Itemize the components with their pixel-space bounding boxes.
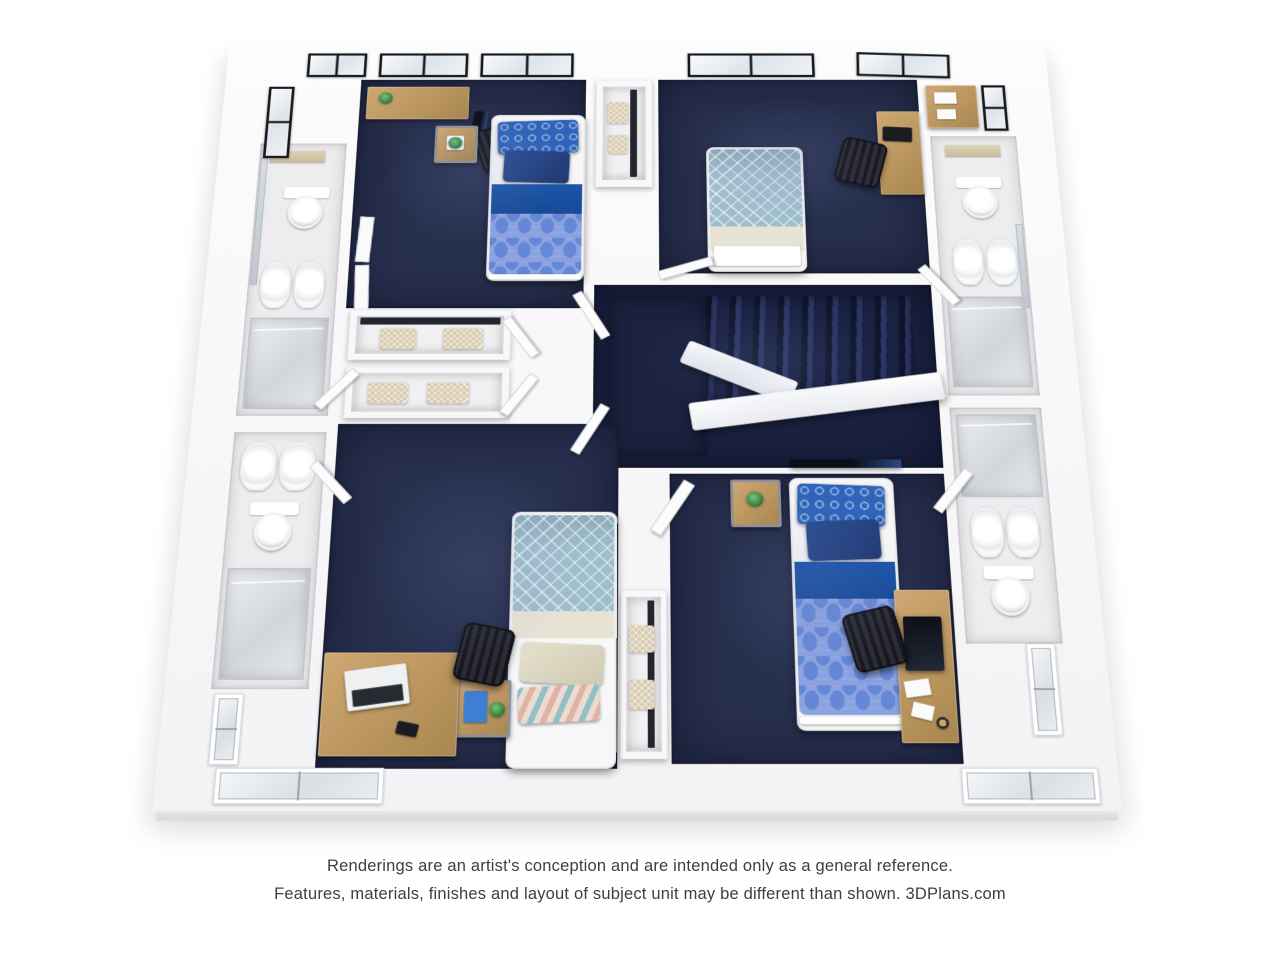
bed-cream-band xyxy=(512,611,614,638)
bed-footboard xyxy=(488,274,581,279)
shower xyxy=(955,414,1043,497)
toilet xyxy=(954,177,1007,223)
floor-plan-rendering-page: Renderings are an artist's conception an… xyxy=(0,0,1280,960)
storage-basket xyxy=(427,383,470,404)
window xyxy=(307,53,368,77)
storage-basket xyxy=(443,328,483,349)
storage-basket xyxy=(379,328,416,349)
storage-basket xyxy=(367,383,408,404)
navy-pillow xyxy=(503,150,571,184)
bedroom-bottom-right xyxy=(670,474,964,764)
toilet-bowl xyxy=(990,577,1031,616)
nightstand xyxy=(730,480,782,528)
desk xyxy=(318,653,460,757)
mug xyxy=(936,717,950,729)
shower xyxy=(218,568,312,680)
closet-rail xyxy=(630,90,637,177)
closet-top-center xyxy=(595,80,652,187)
toilet-bowl xyxy=(961,186,999,219)
window xyxy=(213,768,385,804)
closet-shelf xyxy=(602,87,645,180)
window xyxy=(379,53,469,77)
sink-vanity xyxy=(952,239,1020,285)
desk xyxy=(894,590,960,743)
window xyxy=(961,768,1101,804)
sink-vanity xyxy=(239,442,317,490)
bed-pillow xyxy=(714,246,801,266)
tablet xyxy=(463,691,488,723)
bed-sheet-band xyxy=(794,562,897,599)
bed xyxy=(789,478,908,731)
closet-door-panel xyxy=(355,217,375,263)
window xyxy=(480,53,574,77)
wardrobe-shelf xyxy=(925,85,979,127)
bed-footboard xyxy=(800,717,904,724)
slab-edge xyxy=(155,811,1119,821)
toilet xyxy=(279,187,332,233)
toilet xyxy=(981,566,1039,621)
window xyxy=(688,53,815,77)
storage-basket xyxy=(609,135,628,154)
bedroom-top-left xyxy=(346,80,586,308)
storage-basket xyxy=(629,625,654,652)
toilet-bowl xyxy=(286,196,324,229)
sink-vanity xyxy=(258,262,326,308)
paper-sheet xyxy=(903,678,931,698)
closet-rail xyxy=(360,317,500,324)
caption-line-2: Features, materials, finishes and layout… xyxy=(0,880,1280,908)
laptop-keyboard xyxy=(352,684,404,707)
stair-landing xyxy=(606,297,708,457)
diamond-blanket xyxy=(709,149,803,226)
nightstand xyxy=(455,680,512,738)
folded-linen xyxy=(934,92,957,103)
wall-mounted-tv xyxy=(790,460,902,468)
shower xyxy=(947,297,1034,388)
laptop-closed xyxy=(883,126,912,142)
laptop xyxy=(344,663,410,711)
desk xyxy=(366,87,470,119)
diamond-blanket xyxy=(512,515,614,611)
bed xyxy=(706,147,808,272)
storage-basket xyxy=(608,102,629,123)
closet-door-panel xyxy=(354,265,369,312)
plant xyxy=(746,491,763,506)
towel-bar xyxy=(945,145,1001,157)
chevron-accent-pillow xyxy=(517,683,600,724)
nightstand xyxy=(434,126,479,163)
desk-plant xyxy=(379,92,393,103)
window xyxy=(208,694,244,765)
storage-basket xyxy=(629,680,654,710)
bedroom-bottom-left xyxy=(315,424,619,769)
closet-bottom-center xyxy=(620,590,667,759)
bed xyxy=(505,512,617,769)
bed-sheet-band xyxy=(491,184,582,214)
navy-pillow xyxy=(805,519,882,561)
toilet xyxy=(244,502,301,555)
sink-vanity xyxy=(970,508,1042,558)
shower xyxy=(242,317,329,409)
closet-left-lower xyxy=(343,366,510,418)
caption-line-1: Renderings are an artist's conception an… xyxy=(0,852,1280,880)
cream-pillow xyxy=(519,641,605,685)
closet-rail xyxy=(648,600,655,747)
toilet-bowl xyxy=(252,513,293,551)
folded-linen xyxy=(937,109,957,119)
bedroom-top-right xyxy=(658,80,930,274)
window xyxy=(856,52,950,78)
closet-shelf xyxy=(626,597,662,752)
hallway-stairwell xyxy=(592,285,943,468)
monitor xyxy=(903,617,945,671)
phone xyxy=(395,720,419,737)
quatrefoil-blanket xyxy=(489,214,582,274)
paper-sheet xyxy=(911,702,935,721)
disclaimer-caption: Renderings are an artist's conception an… xyxy=(0,852,1280,908)
window xyxy=(981,85,1009,130)
floor-plan-3d-rendering xyxy=(152,45,1122,812)
bed xyxy=(486,115,586,281)
closet-left-upper xyxy=(347,310,512,360)
